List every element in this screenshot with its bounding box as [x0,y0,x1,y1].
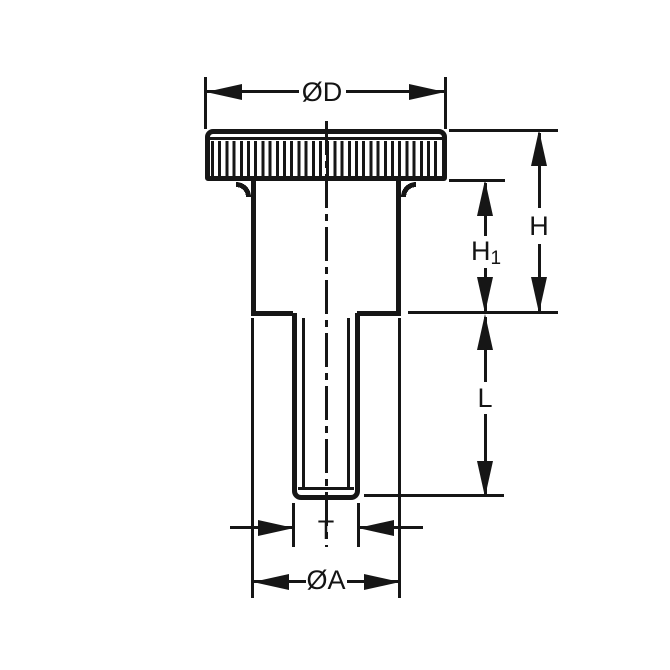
dim-h1-arrow-down [477,277,493,313]
dim-a-arrow-left [253,574,289,590]
dim-l-extension-line-bottom [364,494,504,497]
dim-label-shoulder-height-base: H [471,236,491,266]
dim-d-arrow-left [206,84,242,100]
thread-minor-line-right [347,318,350,488]
dim-a-arrow-right [364,574,400,590]
shoulder-left-edge [251,181,256,314]
dim-d-arrow-right [409,84,445,100]
dim-t-arrow-right [258,520,294,536]
dim-label-shoulder-height: H1 [458,235,514,275]
dim-label-shoulder-diameter: ØA [299,564,353,596]
shoulder-bottom-line-right [357,311,401,316]
dim-h1-arrow-up [477,180,493,216]
dim-l-arrow-down [477,461,493,497]
centerline [325,121,328,547]
neck-fillet-right [400,181,416,197]
dim-label-thread-size: T [299,514,353,546]
dim-label-shoulder-height-subscript: 1 [490,248,501,269]
dim-a-extension-line-left [251,318,254,598]
dim-label-overall-height: H [512,210,566,242]
thread-minor-line-left [302,318,305,488]
technical-drawing-knurled-thumb-screw: ØD H H1 L T ØA [0,0,670,670]
dim-l-arrow-up [477,314,493,350]
dim-h-arrow-down [531,277,547,313]
shoulder-right-edge [396,181,401,314]
dim-t-arrow-left [358,520,394,536]
neck-fillet-left [236,181,252,197]
dim-label-thread-length: L [458,382,512,414]
dim-a-extension-line-right [398,318,401,598]
shoulder-bottom-line-left [251,311,293,316]
dim-label-head-diameter: ØD [295,76,349,108]
dim-h-arrow-up [531,130,547,166]
